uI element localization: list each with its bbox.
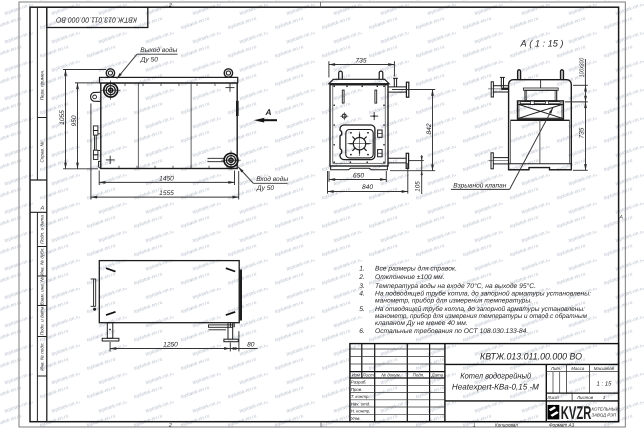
svg-text:1250: 1250 — [163, 342, 178, 349]
svg-text:Дата: Дата — [431, 373, 444, 378]
svg-text:Лит.: Лит. — [550, 366, 561, 371]
svg-text:2: 2 — [168, 423, 172, 429]
svg-text:Heatexpert-КВа-0,15 -М: Heatexpert-КВа-0,15 -М — [452, 383, 539, 392]
svg-text:Лист: Лист — [546, 395, 559, 400]
svg-text:5.: 5. — [359, 306, 365, 313]
svg-text:КВТЖ.013.011.00.000 ВО: КВТЖ.013.011.00.000 ВО — [56, 15, 137, 24]
svg-text:манометр, прибор для измерения: манометр, прибор для измерения температу… — [375, 298, 532, 305]
svg-text:Справ. №: Справ. № — [40, 142, 45, 163]
svg-text:Т. контр.: Т. контр. — [351, 394, 370, 399]
svg-text:Взам. инв. №: Взам. инв. № — [40, 277, 45, 305]
svg-text:Ду 50: Ду 50 — [140, 57, 159, 64]
svg-text:Лист: Лист — [362, 373, 375, 378]
svg-text:2.: 2. — [358, 274, 365, 281]
svg-text:Инв. № подл.: Инв. № подл. — [40, 342, 45, 371]
svg-text:80: 80 — [247, 342, 255, 349]
svg-text:842: 842 — [426, 123, 433, 134]
svg-text:735: 735 — [355, 57, 366, 64]
svg-text:6.: 6. — [359, 328, 365, 335]
svg-text:Инв. № дубл.: Инв. № дубл. — [40, 247, 45, 275]
svg-text:Нач. отд.: Нач. отд. — [351, 401, 371, 406]
svg-text:1055: 1055 — [59, 110, 66, 125]
svg-text:Котел водогрейный: Котел водогрейный — [460, 372, 531, 381]
svg-text:Вход воды: Вход воды — [256, 176, 288, 183]
svg-text:1555: 1555 — [159, 190, 174, 197]
svg-text:Масса: Масса — [571, 366, 585, 371]
svg-text:Формат А3: Формат А3 — [549, 422, 575, 427]
svg-text:А: А — [265, 107, 272, 117]
svg-text:2: 2 — [168, 3, 172, 9]
svg-text:Листов: Листов — [576, 395, 594, 400]
svg-text:Масштаб: Масштаб — [594, 366, 615, 371]
svg-text:840: 840 — [362, 184, 373, 191]
svg-text:Копировал: Копировал — [495, 422, 518, 427]
svg-text:клапаном Ду не менее 40 мм.: клапаном Ду не менее 40 мм. — [375, 320, 468, 327]
svg-text:Подп. и дата: Подп. и дата — [40, 306, 45, 335]
svg-text:650: 650 — [353, 173, 364, 180]
svg-text:Ду 50: Ду 50 — [256, 185, 275, 192]
svg-text:105: 105 — [414, 181, 421, 192]
svg-text:Подп.: Подп. — [413, 373, 425, 378]
svg-text:100х300: 100х300 — [579, 57, 586, 77]
svg-text:Перв. примен.: Перв. примен. — [40, 70, 45, 101]
svg-text:1.: 1. — [359, 265, 365, 272]
svg-text:4.: 4. — [359, 291, 365, 298]
svg-text:Температура воды на входе 70°С: Температура воды на входе 70°С, на выход… — [375, 283, 536, 290]
svg-text:3.: 3. — [359, 283, 365, 290]
svg-text:А ( 1 : 15 ): А ( 1 : 15 ) — [520, 38, 564, 48]
svg-text:Пров.: Пров. — [351, 387, 363, 392]
svg-text:1450: 1450 — [159, 175, 174, 182]
svg-text:Подп. и дата: Подп. и дата — [40, 215, 45, 244]
svg-text:На подводящей трубе котла, до: На подводящей трубе котла, до запорной а… — [375, 291, 591, 298]
svg-text:1 : 15: 1 : 15 — [596, 381, 612, 388]
svg-text:Утв.: Утв. — [351, 416, 361, 421]
svg-text:ЗАВОД РЭП: ЗАВОД РЭП — [592, 413, 618, 418]
svg-text:KVZR: KVZR — [561, 402, 592, 423]
svg-text:На отводящей трубе котла, до з: На отводящей трубе котла, до запорной ар… — [375, 306, 585, 313]
svg-text:Отклонение ±100 мм.: Отклонение ±100 мм. — [375, 274, 445, 281]
svg-text:КОТЕЛЬНЫЙ: КОТЕЛЬНЫЙ — [592, 407, 620, 412]
svg-text:А: А — [619, 215, 624, 221]
svg-text:735: 735 — [579, 127, 586, 138]
svg-text:№ докум.: № докум. — [381, 373, 400, 378]
svg-text:А: А — [40, 206, 45, 212]
svg-text:Разраб.: Разраб. — [351, 380, 367, 385]
svg-text:Выход воды: Выход воды — [140, 47, 177, 54]
svg-text:1: 1 — [473, 422, 476, 427]
svg-text:Взрывной клапан: Взрывной клапан — [453, 182, 506, 189]
svg-text:Остальные требования по ОСТ 10: Остальные требования по ОСТ 108.030.133-… — [375, 328, 528, 335]
svg-text:Изм: Изм — [352, 373, 360, 378]
svg-text:Н. контр.: Н. контр. — [351, 409, 371, 414]
svg-text:КВТЖ.013.011.00.000 ВО: КВТЖ.013.011.00.000 ВО — [480, 350, 583, 361]
svg-text:950: 950 — [71, 115, 78, 126]
svg-text:Все размеры для справок.: Все размеры для справок. — [375, 265, 457, 272]
